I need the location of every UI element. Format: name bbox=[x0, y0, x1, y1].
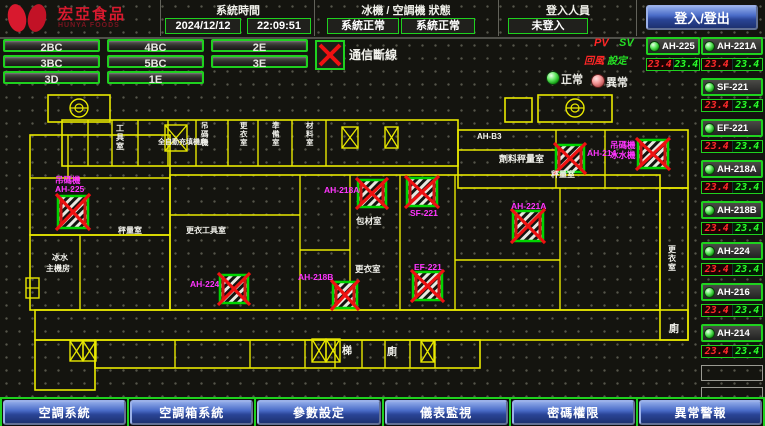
ahu-sv-value: 23.4 bbox=[733, 59, 763, 70]
sv-header: SV bbox=[619, 37, 634, 49]
sv-sub-header: 設定 bbox=[607, 52, 627, 67]
ahu-sv-value: 23.4 bbox=[674, 59, 700, 70]
equipment-label: SF-221 bbox=[410, 208, 438, 218]
stair-icon bbox=[70, 99, 88, 117]
room-label: 冰水 bbox=[52, 252, 69, 262]
room-label: 廁 bbox=[669, 322, 679, 335]
room-label: 主機房 bbox=[46, 263, 70, 273]
equipment-label: 冰水機 bbox=[610, 150, 636, 160]
login-status-value: 未登入 bbox=[508, 18, 588, 34]
wall bbox=[30, 135, 170, 235]
device-icon-冰水機[interactable] bbox=[636, 138, 670, 170]
ahu-button[interactable]: AH-224 bbox=[701, 242, 763, 260]
ahu-item-EF-221: EF-22123.423.4 bbox=[701, 119, 763, 153]
stair-xbox-icon bbox=[421, 341, 434, 362]
abnormal-led-icon bbox=[591, 74, 605, 88]
ahu-sv-value: 23.4 bbox=[733, 305, 763, 316]
ahu-empty-slot bbox=[701, 365, 763, 381]
nav-cell: 密碼權限 bbox=[511, 399, 638, 426]
nav-button-異常警報[interactable]: 異常警報 bbox=[639, 400, 762, 425]
ahu-button[interactable]: AH-216 bbox=[701, 283, 763, 301]
ahu-column-left: AH-22523.423.4 bbox=[646, 37, 700, 78]
ahu-pv-value: 23.4 bbox=[702, 100, 733, 111]
room-label: 更衣室 bbox=[240, 121, 248, 147]
ahu-button[interactable]: AH-225 bbox=[646, 37, 700, 55]
nav-button-參數設定[interactable]: 參數設定 bbox=[257, 400, 380, 425]
stair-xbox-icon bbox=[312, 339, 326, 362]
ahu-name: AH-218A bbox=[717, 164, 757, 175]
room-label: 劑料秤量室 bbox=[498, 153, 544, 164]
bottom-nav-bar: 空調系統空調箱系統參數設定儀表監視密碼權限異常警報 bbox=[0, 397, 765, 426]
status-led-icon bbox=[649, 41, 660, 52]
status-led-icon bbox=[704, 205, 715, 216]
nav-cell: 空調箱系統 bbox=[129, 399, 256, 426]
ahu-name: AH-218B bbox=[717, 205, 757, 216]
system-time-value: 22:09:51 bbox=[247, 18, 311, 34]
system-time-label: 系統時間 bbox=[168, 2, 308, 18]
device-icon-EF-221[interactable] bbox=[411, 270, 444, 302]
stair-xbox-icon bbox=[83, 341, 96, 361]
stair-xbox-icon bbox=[342, 127, 358, 148]
room-label: 廁 bbox=[387, 345, 397, 358]
ahu-item-AH-218B: AH-218B23.423.4 bbox=[701, 201, 763, 235]
equipment-label: AH-218A bbox=[324, 185, 359, 195]
brand-name-en: HUNYA FOODS bbox=[58, 22, 126, 29]
nav-cell: 異常警報 bbox=[638, 399, 763, 426]
floor-button-2BC[interactable]: 2BC bbox=[3, 39, 100, 52]
room-label: 吊碼機 bbox=[200, 121, 209, 147]
header-divider bbox=[160, 0, 161, 36]
ahu-name: AH-224 bbox=[717, 246, 750, 257]
equipment-label: 吊碼機 bbox=[610, 140, 636, 150]
ahu-temps: 23.423.4 bbox=[701, 222, 763, 235]
ahu-sv-value: 23.4 bbox=[733, 100, 763, 111]
ahu-temps: 23.423.4 bbox=[701, 263, 763, 276]
device-icon-SF-221[interactable] bbox=[405, 176, 439, 208]
ahu-name: AH-216 bbox=[717, 287, 750, 298]
equipment-label: EF-221 bbox=[414, 262, 442, 272]
abnormal-label: 異常 bbox=[606, 74, 628, 90]
ahu-pv-value: 23.4 bbox=[702, 223, 733, 234]
room-label: 更衣室 bbox=[668, 244, 677, 272]
ahu-button[interactable]: SF-221 bbox=[701, 78, 763, 96]
ahu-temps: 23.423.4 bbox=[701, 140, 763, 153]
ahu-column-right: AH-221A23.423.4SF-22123.423.4EF-22123.42… bbox=[701, 37, 763, 403]
room-label: 全自動充填機房 bbox=[157, 137, 207, 146]
pv-sub-header: 回風 bbox=[584, 52, 604, 67]
floor-button-1E[interactable]: 1E bbox=[107, 71, 204, 84]
ahu-item-AH-225: AH-22523.423.4 bbox=[646, 37, 700, 71]
ahu-name: AH-214 bbox=[717, 328, 750, 339]
login-user-label: 登入人員 bbox=[505, 2, 631, 18]
ahu-temps: 23.423.4 bbox=[646, 58, 700, 71]
nav-cell: 儀表監視 bbox=[384, 399, 511, 426]
room-label: AH-B3 bbox=[477, 132, 502, 141]
company-logo: 宏亞食品 HUNYA FOODS bbox=[6, 3, 126, 33]
ahu-sv-value: 23.4 bbox=[733, 264, 763, 275]
nav-cell: 空調系統 bbox=[2, 399, 129, 426]
hmi-screen: 吊碼機AH-225AH-224AH-218ASF-221EF-221AH-218… bbox=[0, 0, 765, 426]
room-label: 準備室 bbox=[272, 120, 280, 147]
service-shaft-icon bbox=[26, 278, 39, 298]
header-divider bbox=[636, 0, 637, 36]
ahu-pv-value: 23.4 bbox=[702, 346, 733, 357]
normal-led-icon bbox=[546, 71, 560, 85]
ahu-item-SF-221: SF-22123.423.4 bbox=[701, 78, 763, 112]
chiller-status-value: 系統正常 bbox=[327, 18, 399, 34]
ahu-button[interactable]: EF-221 bbox=[701, 119, 763, 137]
room-label: 更衣室 bbox=[355, 264, 381, 274]
ahu-temps: 23.423.4 bbox=[701, 304, 763, 317]
nav-button-密碼權限[interactable]: 密碼權限 bbox=[512, 400, 635, 425]
stair-xbox-icon bbox=[385, 127, 398, 148]
logo-mark-icon bbox=[6, 3, 52, 33]
ahu-item-AH-216: AH-21623.423.4 bbox=[701, 283, 763, 317]
wall bbox=[35, 310, 688, 340]
status-led-icon bbox=[704, 41, 715, 52]
device-icon-AH-218B[interactable] bbox=[331, 280, 359, 310]
equipment-label: AH-218B bbox=[298, 272, 333, 282]
ahu-temps: 23.423.4 bbox=[701, 99, 763, 112]
wall bbox=[35, 340, 95, 390]
status-led-icon bbox=[704, 287, 715, 298]
stair-icon bbox=[566, 99, 584, 117]
floor-button-3D[interactable]: 3D bbox=[3, 71, 100, 84]
ahu-pv-value: 23.4 bbox=[647, 59, 674, 70]
machine-status-label: 冰機 / 空調機 狀態 bbox=[320, 2, 492, 18]
wall bbox=[505, 98, 532, 122]
stair-xbox-icon bbox=[70, 341, 83, 361]
ahu-sv-value: 23.4 bbox=[733, 346, 763, 357]
ahu-button[interactable]: AH-218B bbox=[701, 201, 763, 219]
floor-button-3E[interactable]: 3E bbox=[211, 55, 308, 68]
status-led-icon bbox=[704, 246, 715, 257]
ahu-item-AH-224: AH-22423.423.4 bbox=[701, 242, 763, 276]
device-icon-AH-224[interactable] bbox=[218, 273, 250, 305]
ahu-pv-value: 23.4 bbox=[702, 141, 733, 152]
ahu-pv-value: 23.4 bbox=[702, 305, 733, 316]
device-icon-AH-218A[interactable] bbox=[356, 178, 388, 209]
ahu-button[interactable]: AH-221A bbox=[701, 37, 763, 55]
comm-fail-label: 通信斷線 bbox=[349, 46, 397, 63]
room-label: 秤量室 bbox=[551, 169, 575, 179]
ahu-name: SF-221 bbox=[717, 82, 748, 93]
header-divider bbox=[314, 0, 315, 36]
nav-button-儀表監視[interactable]: 儀表監視 bbox=[385, 400, 508, 425]
ahu-sv-value: 23.4 bbox=[733, 223, 763, 234]
floor-button-2E[interactable]: 2E bbox=[211, 39, 308, 52]
status-led-icon bbox=[704, 164, 715, 175]
room-label: 工具室 bbox=[116, 124, 124, 151]
floor-button-3BC[interactable]: 3BC bbox=[3, 55, 100, 68]
device-icon-AH-225[interactable] bbox=[56, 194, 90, 230]
equipment-label: AH-225 bbox=[55, 184, 85, 194]
stair-xbox-icon bbox=[326, 339, 340, 362]
status-led-icon bbox=[704, 123, 715, 134]
ahu-pv-value: 23.4 bbox=[702, 264, 733, 275]
nav-cell: 參數設定 bbox=[256, 399, 383, 426]
ahu-item-AH-221A: AH-221A23.423.4 bbox=[701, 37, 763, 71]
room-label: 包材室 bbox=[356, 216, 382, 226]
status-led-icon bbox=[704, 82, 715, 93]
ahu-temps: 23.423.4 bbox=[701, 181, 763, 194]
ahu-name: AH-221A bbox=[717, 41, 757, 52]
ahu-sv-value: 23.4 bbox=[733, 141, 763, 152]
ahu-item-AH-214: AH-21423.423.4 bbox=[701, 324, 763, 358]
ahu-temps: 23.423.4 bbox=[701, 58, 763, 71]
room-label: 梯 bbox=[342, 344, 352, 357]
comm-fail-icon bbox=[315, 40, 345, 70]
equipment-label: AH-224 bbox=[190, 279, 220, 289]
room-label: 更衣工具室 bbox=[186, 225, 226, 235]
room-label: 秤量室 bbox=[118, 225, 142, 235]
normal-label: 正常 bbox=[561, 71, 583, 87]
login-logout-button[interactable]: 登入/登出 bbox=[646, 5, 758, 30]
ahu-temps: 23.423.4 bbox=[701, 345, 763, 358]
pv-header: PV bbox=[594, 37, 609, 49]
brand-name: 宏亞食品 bbox=[58, 7, 126, 22]
ahu-pv-value: 23.4 bbox=[702, 59, 733, 70]
nav-button-空調系統[interactable]: 空調系統 bbox=[3, 400, 126, 425]
ahu-name: AH-225 bbox=[662, 41, 695, 52]
status-led-icon bbox=[704, 328, 715, 339]
system-date-value: 2024/12/12 bbox=[165, 18, 241, 34]
ahu-name: EF-221 bbox=[717, 123, 748, 134]
ahu-pv-value: 23.4 bbox=[702, 182, 733, 193]
room-label: 材料室 bbox=[306, 120, 314, 147]
equipment-label: AH-221A bbox=[511, 201, 546, 211]
floor-button-5BC[interactable]: 5BC bbox=[107, 55, 204, 68]
ahu-button[interactable]: AH-218A bbox=[701, 160, 763, 178]
ahu-item-AH-218A: AH-218A23.423.4 bbox=[701, 160, 763, 194]
nav-button-空調箱系統[interactable]: 空調箱系統 bbox=[130, 400, 253, 425]
header-divider bbox=[498, 0, 499, 36]
device-icon-AH-221A[interactable] bbox=[511, 209, 545, 243]
ahu-button[interactable]: AH-214 bbox=[701, 324, 763, 342]
ahu-sv-value: 23.4 bbox=[733, 182, 763, 193]
ahu-status-value: 系統正常 bbox=[401, 18, 475, 34]
floor-button-4BC[interactable]: 4BC bbox=[107, 39, 204, 52]
